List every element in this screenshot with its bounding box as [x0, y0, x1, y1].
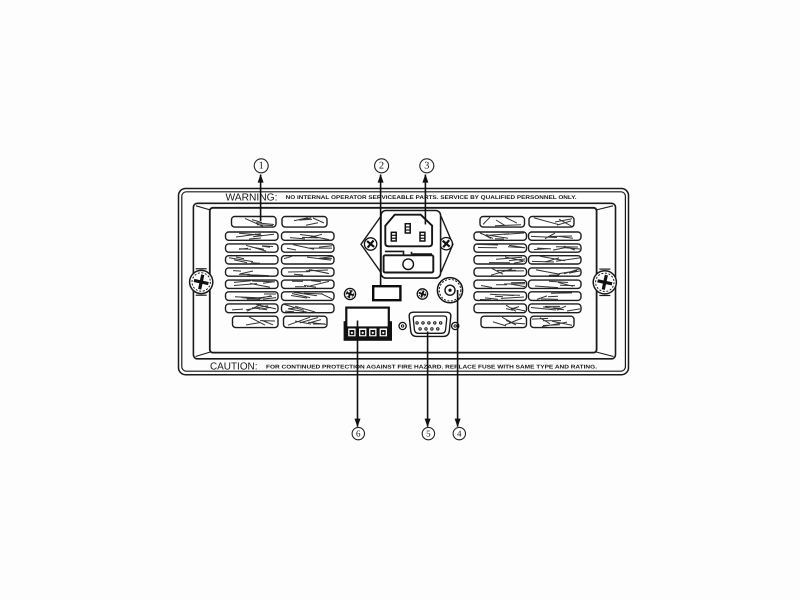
svg-text:CAUTION:: CAUTION: — [210, 361, 258, 372]
svg-text:5: 5 — [426, 429, 431, 439]
svg-text:6: 6 — [356, 429, 361, 439]
svg-text:1: 1 — [259, 160, 264, 171]
svg-text:2: 2 — [379, 160, 384, 171]
svg-text:4: 4 — [457, 429, 462, 439]
svg-text:WARNING:: WARNING: — [226, 193, 278, 204]
svg-text:FOR CONTINUED PROTECTION AGAIN: FOR CONTINUED PROTECTION AGAINST FIRE HA… — [266, 365, 598, 371]
svg-text:NO INTERNAL OPERATOR SERVICEAB: NO INTERNAL OPERATOR SERVICEABLE PARTS. … — [286, 195, 578, 201]
svg-text:3: 3 — [424, 160, 429, 171]
